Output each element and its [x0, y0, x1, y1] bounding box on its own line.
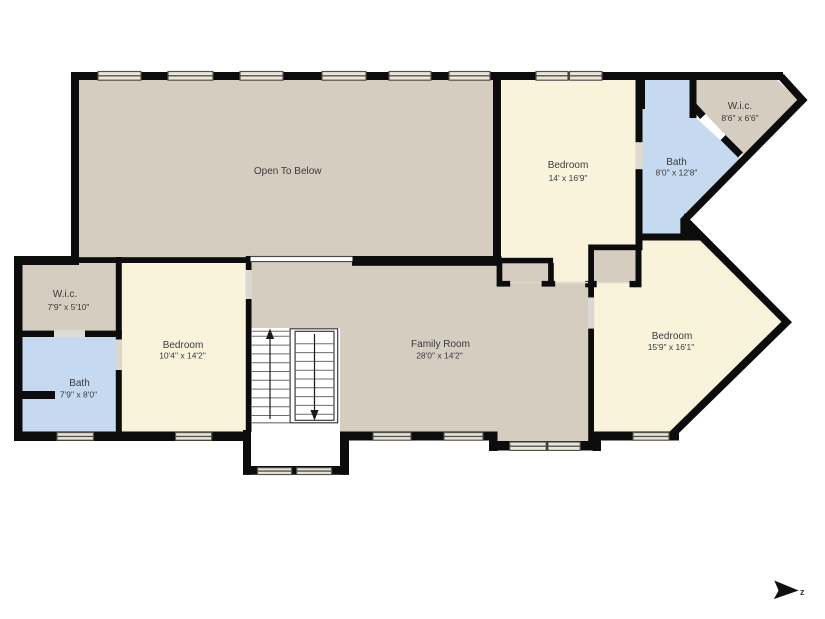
- svg-text:Bath: Bath: [69, 378, 90, 389]
- svg-text:Bedroom: Bedroom: [652, 331, 693, 342]
- svg-text:Open To Below: Open To Below: [254, 166, 322, 177]
- svg-text:8'6" x 6'6": 8'6" x 6'6": [721, 113, 758, 123]
- svg-text:14' x 16'9": 14' x 16'9": [549, 173, 588, 183]
- svg-text:Bath: Bath: [666, 157, 687, 168]
- svg-text:7'9" x 5'10": 7'9" x 5'10": [48, 302, 90, 312]
- svg-text:8'0" x 12'8": 8'0" x 12'8": [656, 168, 698, 178]
- svg-text:Bedroom: Bedroom: [163, 340, 204, 351]
- svg-text:28'0" x 14'2": 28'0" x 14'2": [416, 351, 463, 361]
- svg-text:7'9" x 8'0": 7'9" x 8'0": [60, 390, 97, 400]
- svg-text:W.i.c.: W.i.c.: [728, 101, 752, 112]
- svg-text:W.i.c.: W.i.c.: [53, 289, 77, 300]
- svg-text:Family Room: Family Room: [411, 339, 470, 350]
- svg-text:10'4" x 14'2": 10'4" x 14'2": [159, 351, 206, 361]
- svg-text:z: z: [800, 587, 805, 597]
- svg-text:Bedroom: Bedroom: [548, 160, 589, 171]
- svg-text:15'9" x 16'1": 15'9" x 16'1": [648, 342, 695, 352]
